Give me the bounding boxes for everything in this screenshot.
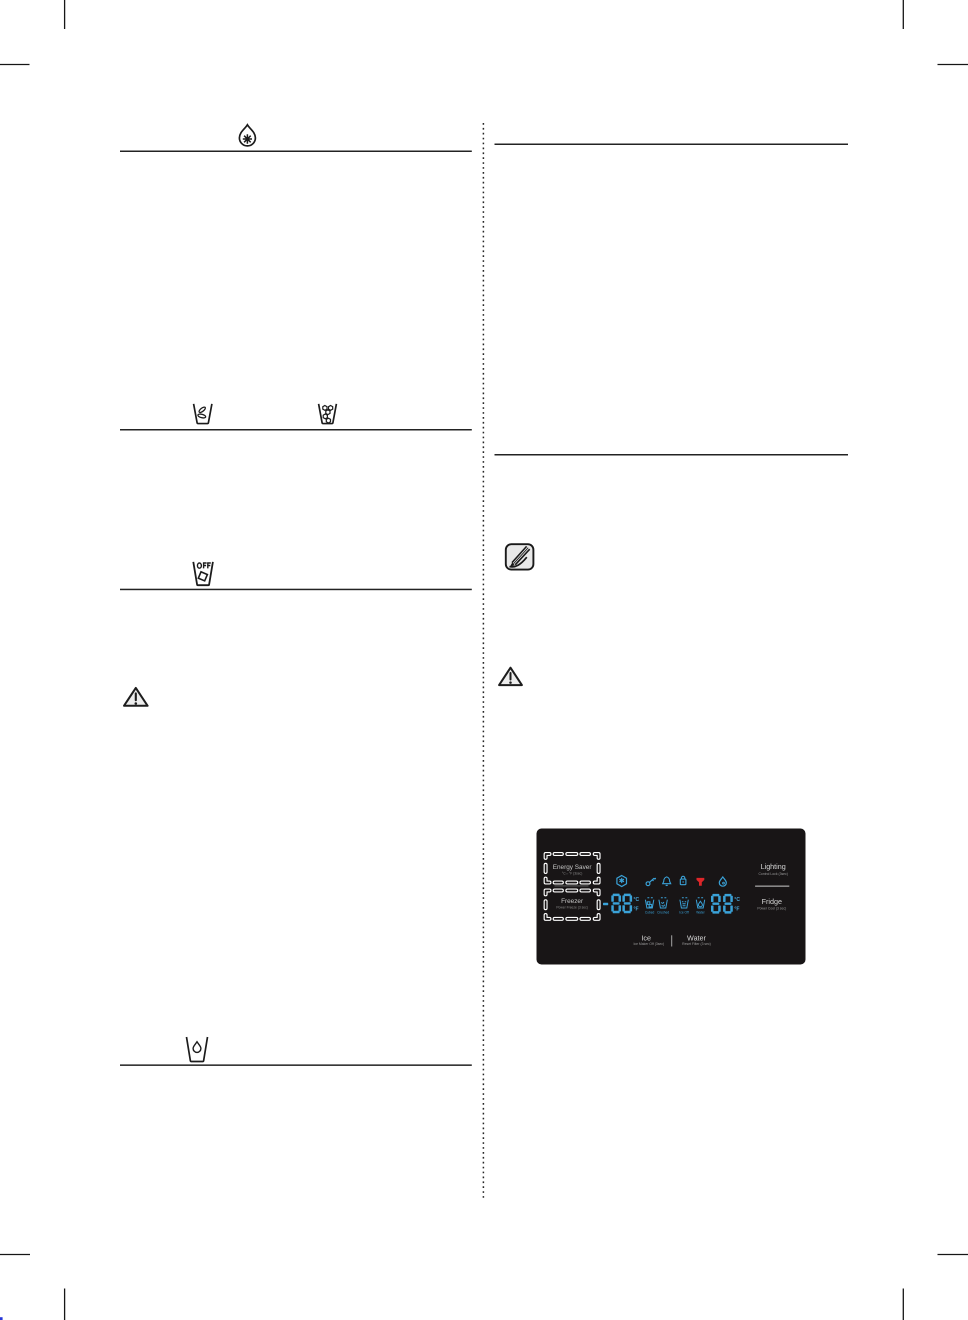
svg-text:°F: °F	[634, 907, 639, 913]
svg-text:Power Cool (3 sec): Power Cool (3 sec)	[757, 906, 786, 910]
svg-text:Water: Water	[696, 910, 705, 914]
svg-text:°C: °C	[734, 897, 740, 903]
svg-text:Power Freeze (3 sec): Power Freeze (3 sec)	[556, 905, 588, 909]
svg-text:Ice Maker Off (3sec): Ice Maker Off (3sec)	[633, 942, 664, 946]
svg-text:Reset Filter (3 sec): Reset Filter (3 sec)	[682, 942, 711, 946]
svg-text:Crushed: Crushed	[657, 910, 669, 914]
svg-text:Fridge: Fridge	[762, 897, 782, 906]
svg-text:°F: °F	[734, 907, 739, 913]
svg-text:°C↔°F (3sec): °C↔°F (3sec)	[562, 871, 582, 875]
svg-text:Cubed: Cubed	[645, 910, 655, 914]
svg-text:Ice Off: Ice Off	[679, 910, 688, 914]
svg-text:Freezer: Freezer	[561, 898, 584, 905]
svg-text:Control Lock (3sec): Control Lock (3sec)	[758, 872, 787, 876]
svg-text:Energy Saver: Energy Saver	[553, 864, 593, 871]
svg-text:°C: °C	[634, 897, 640, 903]
svg-text:Lighting: Lighting	[761, 862, 786, 871]
